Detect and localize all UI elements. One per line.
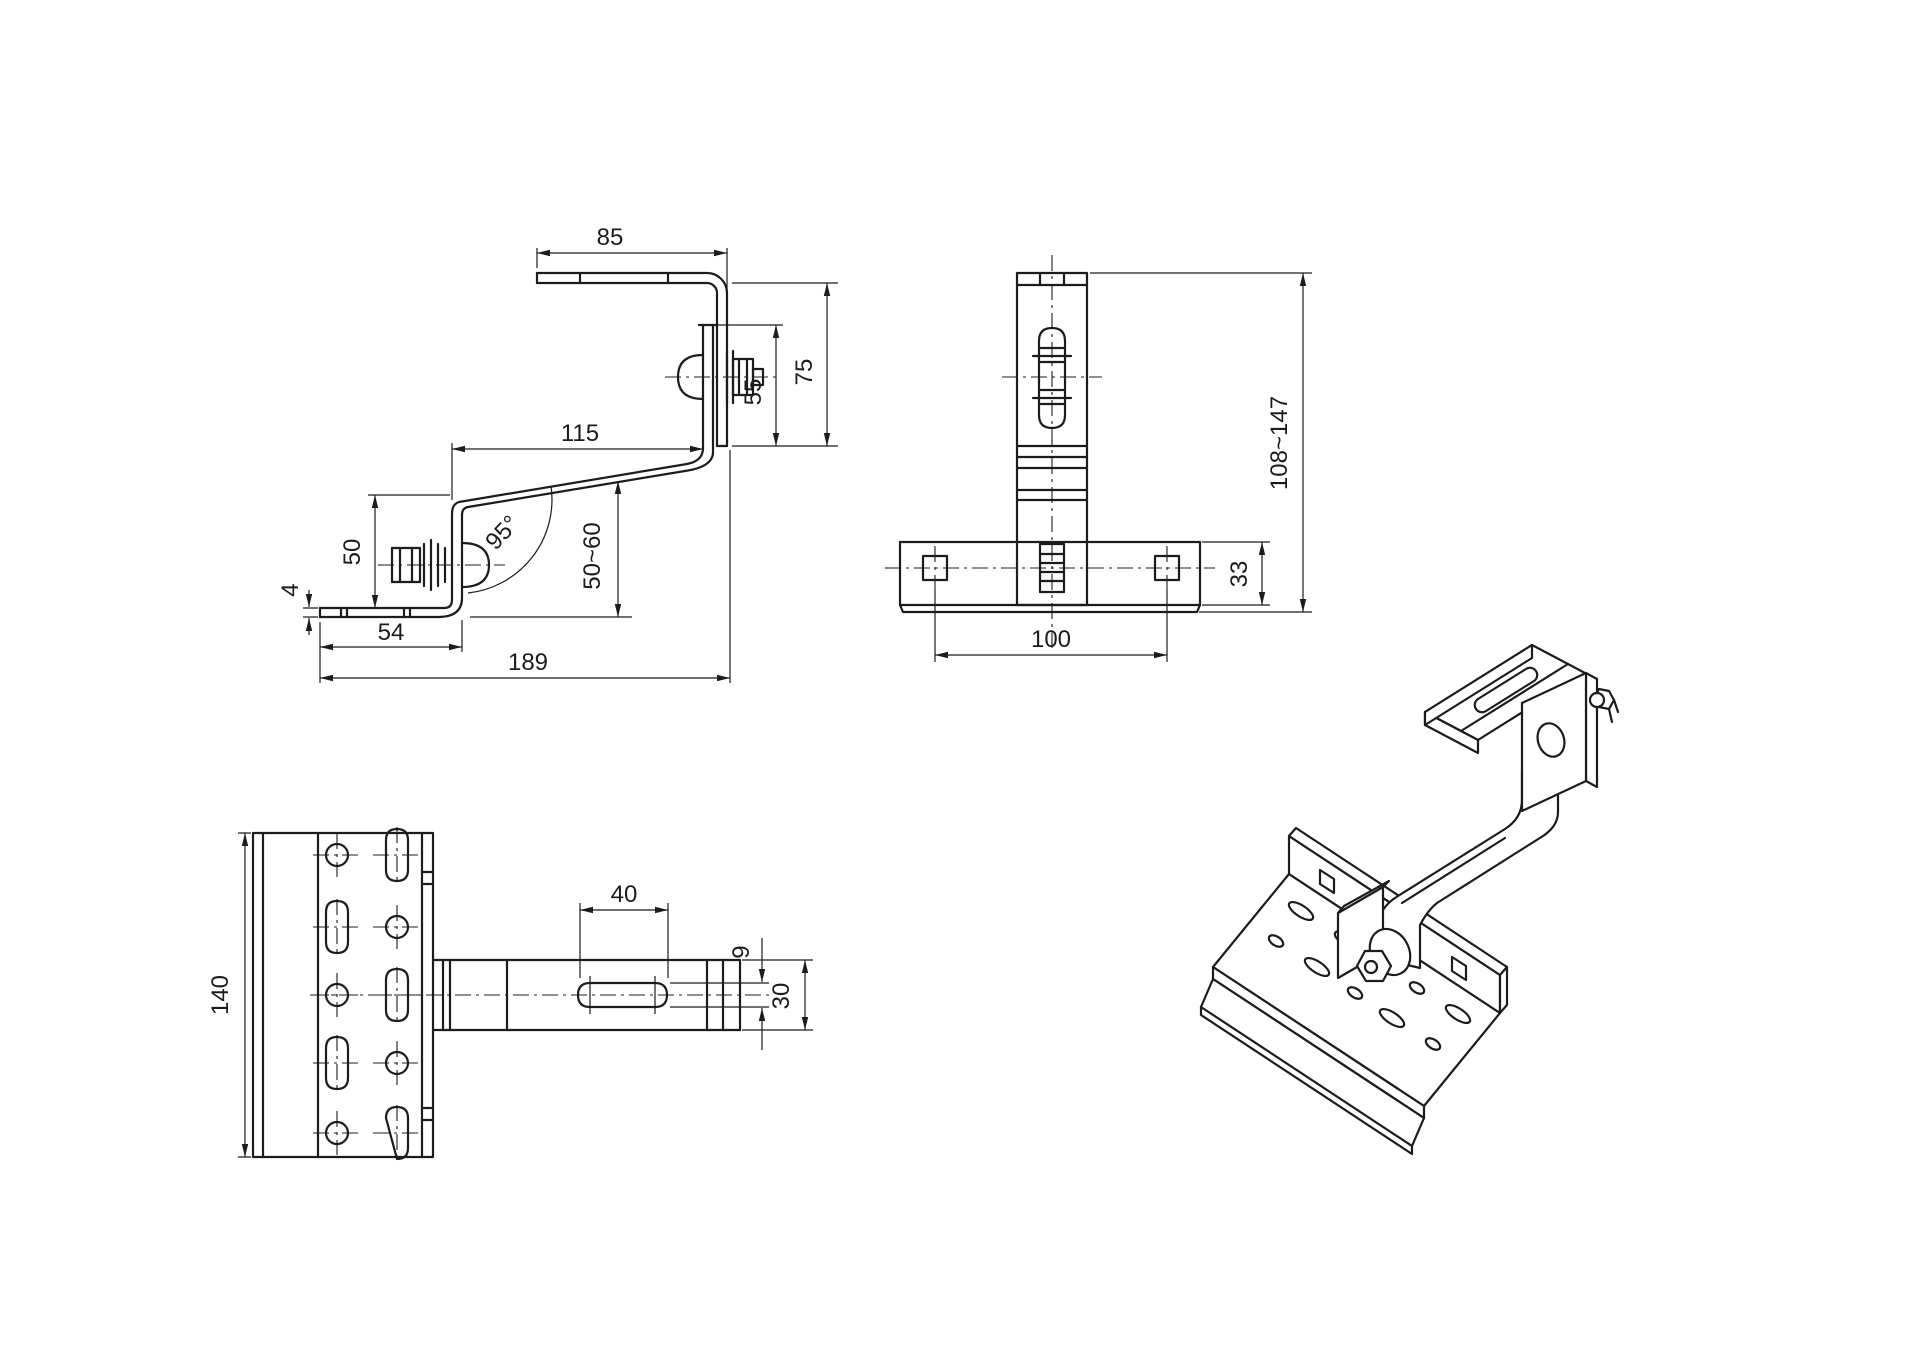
dim-hook-height: 50 [339,539,366,566]
technical-drawing-canvas: 85 75 55 115 50 95° 50~60 4 54 [0,0,1920,1357]
dim-mid-arm: 115 [561,420,599,447]
dim-clearance: 50~60 [579,522,606,589]
top-view-arm [310,960,772,1030]
dim-angle: 95° [480,510,525,555]
dim-hole-spacing: 100 [1031,626,1071,653]
front-view-arm [1002,255,1102,648]
front-view: 100 33 108~147 [885,255,1312,662]
dim-arm-width: 30 [768,983,795,1010]
dim-base-height: 33 [1226,561,1253,588]
side-view: 85 75 55 115 50 95° 50~60 4 54 [277,224,838,683]
dim-top-arm: 85 [597,224,624,251]
dim-overlap: 55 [740,379,767,406]
drawing-sheet: 85 75 55 115 50 95° 50~60 4 54 [0,0,1920,1357]
side-view-dimensions: 85 75 55 115 50 95° 50~60 4 54 [277,224,838,683]
isometric-view [1201,645,1618,1154]
dim-slot-length: 40 [611,881,638,908]
dim-plate-width: 140 [207,975,234,1015]
dim-base-front: 54 [378,619,405,646]
dim-thickness: 4 [277,583,304,596]
top-view-holes [313,827,421,1159]
side-view-lower-piece [320,325,717,617]
dim-slot-width: 9 [728,945,755,958]
side-view-lower-bolt [378,540,505,590]
dim-upper-height: 75 [791,359,818,386]
dim-height-range: 108~147 [1266,396,1293,490]
top-view: 140 40 9 30 [207,827,813,1159]
dim-total-length: 189 [508,649,548,676]
front-view-dimensions: 100 33 108~147 [935,273,1312,662]
